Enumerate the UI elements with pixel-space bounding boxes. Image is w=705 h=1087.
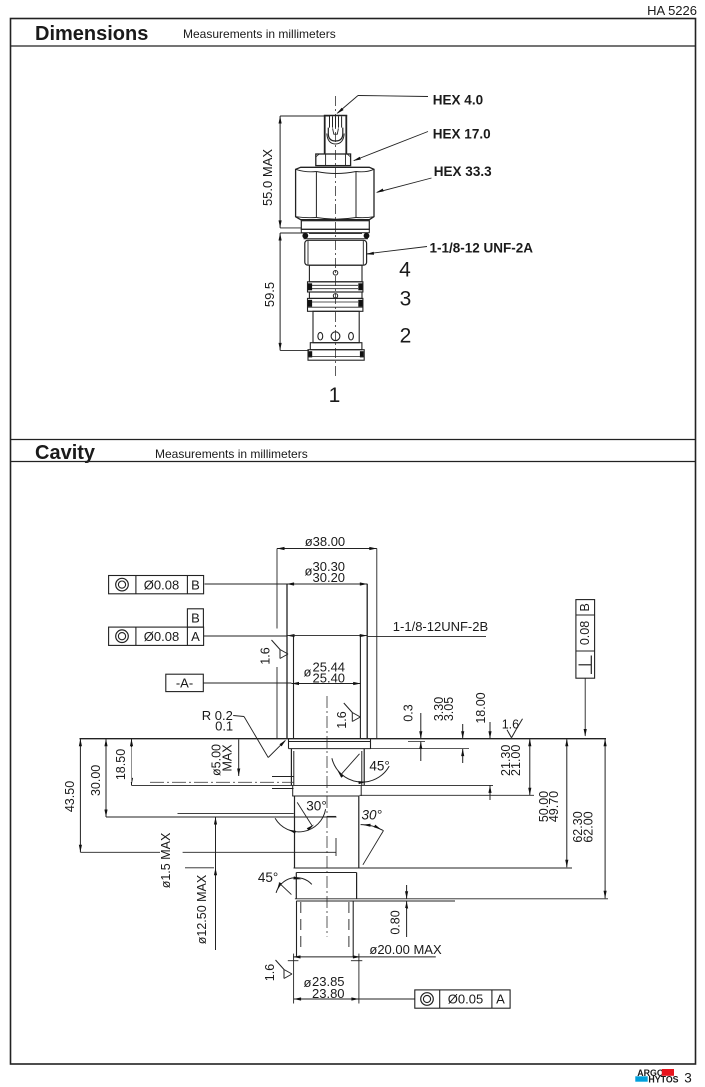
svg-text:30°: 30° [362, 808, 383, 823]
svg-text:Ø0.08: Ø0.08 [144, 629, 179, 644]
svg-text:Ø0.05: Ø0.05 [448, 992, 483, 1007]
svg-text:59.5: 59.5 [262, 282, 277, 307]
svg-text:ø: ø [304, 975, 312, 990]
svg-text:30°: 30° [306, 799, 326, 814]
svg-text:ø: ø [305, 564, 313, 579]
svg-text:4: 4 [399, 259, 411, 282]
svg-text:HA 5226: HA 5226 [647, 3, 697, 18]
svg-text:HEX 17.0: HEX 17.0 [433, 127, 491, 142]
svg-text:30.00: 30.00 [89, 765, 103, 796]
svg-text:B: B [191, 611, 200, 626]
svg-text:Dimensions: Dimensions [35, 23, 148, 45]
svg-text:1.6: 1.6 [259, 647, 273, 664]
svg-text:HEX 4.0: HEX 4.0 [433, 93, 483, 108]
svg-text:0.1: 0.1 [215, 719, 233, 734]
svg-text:ø12.50 MAX: ø12.50 MAX [195, 874, 209, 944]
svg-text:HEX 33.3: HEX 33.3 [434, 164, 492, 179]
svg-text:0.80: 0.80 [389, 910, 403, 934]
svg-text:2: 2 [400, 325, 412, 348]
svg-text:0.08: 0.08 [578, 621, 592, 645]
svg-text:ø20.00 MAX: ø20.00 MAX [369, 942, 442, 957]
svg-text:23.80: 23.80 [312, 986, 345, 1001]
svg-text:Cavity: Cavity [35, 442, 96, 464]
svg-text:Measurements in millimeters: Measurements in millimeters [155, 447, 308, 461]
svg-text:55.0 MAX: 55.0 MAX [260, 149, 275, 206]
svg-text:18.50: 18.50 [114, 749, 128, 780]
svg-text:25.40: 25.40 [313, 671, 346, 686]
svg-text:1.6: 1.6 [263, 964, 277, 981]
svg-text:ø: ø [304, 665, 312, 680]
svg-text:43.50: 43.50 [63, 781, 77, 812]
svg-text:A: A [191, 629, 200, 644]
svg-text:30.20: 30.20 [313, 570, 346, 585]
svg-text:B: B [578, 603, 592, 611]
svg-text:-A-: -A- [176, 675, 193, 690]
svg-text:B: B [191, 577, 200, 592]
svg-text:21.00: 21.00 [509, 745, 523, 776]
svg-text:ø1.5 MAX: ø1.5 MAX [159, 832, 173, 888]
svg-text:1-1/8-12UNF-2B: 1-1/8-12UNF-2B [393, 619, 488, 634]
svg-text:3: 3 [400, 288, 412, 311]
svg-text:1.6: 1.6 [335, 711, 349, 728]
svg-text:MAX: MAX [221, 744, 235, 772]
svg-text:3: 3 [684, 1071, 692, 1086]
svg-text:62.00: 62.00 [581, 811, 595, 842]
svg-text:18.00: 18.00 [474, 692, 488, 723]
svg-text:0.3: 0.3 [402, 704, 416, 721]
svg-text:1: 1 [329, 384, 341, 407]
svg-text:HYTOS: HYTOS [648, 1075, 678, 1085]
svg-text:45°: 45° [369, 759, 389, 774]
svg-text:49.70: 49.70 [547, 791, 561, 822]
svg-text:Measurements in millimeters: Measurements in millimeters [183, 27, 336, 41]
svg-text:45°: 45° [258, 870, 278, 885]
svg-text:1-1/8-12 UNF-2A: 1-1/8-12 UNF-2A [430, 241, 534, 256]
svg-text:3.05: 3.05 [442, 697, 456, 721]
svg-text:Ø0.08: Ø0.08 [144, 577, 179, 592]
svg-text:ø38.00: ø38.00 [305, 534, 345, 549]
svg-text:A: A [496, 992, 505, 1007]
